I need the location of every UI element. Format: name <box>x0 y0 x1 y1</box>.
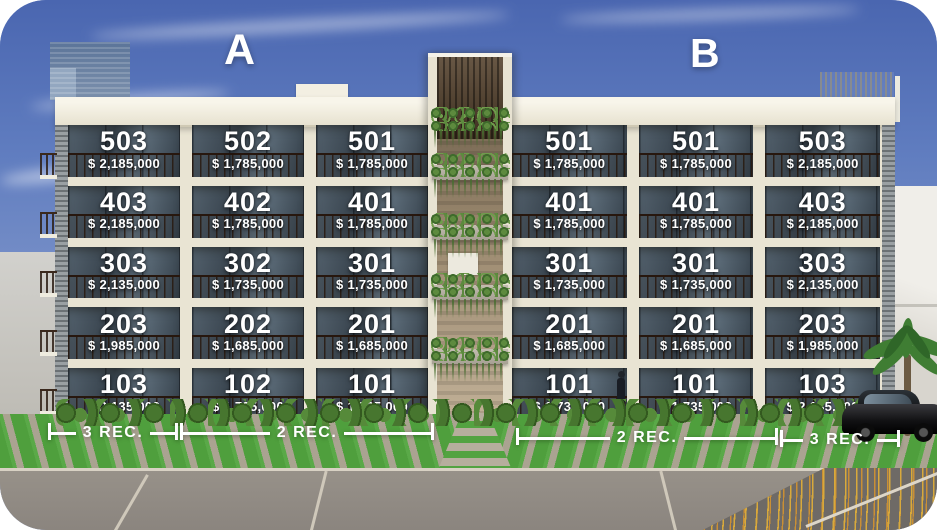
unit-number: 302 <box>224 249 272 277</box>
unit-number: 201 <box>348 310 396 338</box>
unit-number: 401 <box>348 188 396 216</box>
bracket-line <box>783 439 803 442</box>
section-b-grid: 501 $ 1,785,000 501 $ 1,785,000 503 $ 2,… <box>512 125 880 420</box>
unit-price: $ 2,185,000 <box>787 156 859 171</box>
side-balcony <box>40 153 57 179</box>
unit-cell: 401 $ 1,785,000 <box>316 186 428 238</box>
rooftop-pergola <box>820 72 894 98</box>
unit-number: 403 <box>100 188 148 216</box>
unit-label: 401 $ 1,785,000 <box>512 186 627 238</box>
vines <box>434 239 506 259</box>
background-glass-tower <box>50 42 130 100</box>
unit-price: $ 1,685,000 <box>533 338 605 353</box>
unit-price: $ 2,135,000 <box>88 277 160 292</box>
bracket-line <box>183 432 270 435</box>
unit-price: $ 1,985,000 <box>787 338 859 353</box>
unit-price: $ 2,185,000 <box>88 216 160 231</box>
hanging-plants <box>430 273 510 297</box>
bracket-line <box>877 439 897 442</box>
unit-number: 501 <box>348 127 396 155</box>
unit-label: 401 $ 1,785,000 <box>639 186 754 238</box>
rec-label: 2 REC. <box>610 430 685 445</box>
unit-number: 202 <box>224 310 272 338</box>
unit-price: $ 1,735,000 <box>212 277 284 292</box>
unit-label: 501 $ 1,785,000 <box>316 125 428 177</box>
rec-label: 2 REC. <box>270 425 345 440</box>
unit-label: 402 $ 1,785,000 <box>192 186 304 238</box>
person-head <box>618 371 625 378</box>
unit-label: 401 $ 1,785,000 <box>316 186 428 238</box>
unit-label: 202 $ 1,685,000 <box>192 307 304 359</box>
side-balcony <box>40 212 57 238</box>
unit-price: $ 1,785,000 <box>533 216 605 231</box>
car-wheel <box>914 423 933 442</box>
rooftop-structure <box>296 84 348 98</box>
unit-cell: 303 $ 2,135,000 <box>765 247 880 299</box>
unit-number: 503 <box>799 127 847 155</box>
side-balcony <box>40 271 57 297</box>
unit-label: 303 $ 2,135,000 <box>765 247 880 299</box>
unit-cell: 501 $ 1,785,000 <box>512 125 627 177</box>
unit-number: 503 <box>100 127 148 155</box>
unit-cell: 201 $ 1,685,000 <box>316 307 428 359</box>
unit-number: 401 <box>545 188 593 216</box>
unit-price: $ 2,135,000 <box>787 277 859 292</box>
unit-label: 203 $ 1,985,000 <box>68 307 180 359</box>
unit-number: 301 <box>348 249 396 277</box>
vines <box>434 179 506 199</box>
unit-cell: 203 $ 1,985,000 <box>68 307 180 359</box>
unit-label: 201 $ 1,685,000 <box>316 307 428 359</box>
unit-number: 203 <box>100 310 148 338</box>
section-label-b: B <box>690 30 720 77</box>
unit-cell: 202 $ 1,685,000 <box>192 307 304 359</box>
unit-price: $ 1,785,000 <box>533 156 605 171</box>
unit-number: 201 <box>545 310 593 338</box>
unit-cell: 201 $ 1,685,000 <box>512 307 627 359</box>
unit-cell: 303 $ 2,135,000 <box>68 247 180 299</box>
hanging-plants <box>430 213 510 237</box>
unit-number: 103 <box>100 370 148 398</box>
unit-price: $ 1,785,000 <box>212 216 284 231</box>
unit-price: $ 2,185,000 <box>787 216 859 231</box>
unit-cell: 302 $ 1,735,000 <box>192 247 304 299</box>
unit-number: 101 <box>672 370 720 398</box>
unit-label: 303 $ 2,135,000 <box>68 247 180 299</box>
unit-number: 501 <box>672 127 720 155</box>
unit-price: $ 1,735,000 <box>533 277 605 292</box>
hanging-plants <box>430 107 510 131</box>
unit-number: 103 <box>799 370 847 398</box>
unit-cell: 301 $ 1,735,000 <box>316 247 428 299</box>
unit-cell: 403 $ 2,185,000 <box>765 186 880 238</box>
unit-label: 302 $ 1,735,000 <box>192 247 304 299</box>
unit-price: $ 1,685,000 <box>212 338 284 353</box>
unit-price: $ 1,735,000 <box>660 277 732 292</box>
unit-price: $ 1,785,000 <box>660 216 732 231</box>
rec-bracket-a-2: 2 REC. <box>180 423 434 440</box>
unit-price: $ 1,735,000 <box>336 277 408 292</box>
unit-cell: 503 $ 2,185,000 <box>68 125 180 177</box>
bracket-line <box>519 437 610 440</box>
unit-cell: 503 $ 2,185,000 <box>765 125 880 177</box>
unit-price: $ 1,685,000 <box>336 338 408 353</box>
unit-number: 301 <box>672 249 720 277</box>
elevator-tower <box>428 53 512 429</box>
rec-bracket-b-3: 3 REC. <box>780 430 900 447</box>
unit-label: 201 $ 1,685,000 <box>512 307 627 359</box>
unit-cell: 403 $ 2,185,000 <box>68 186 180 238</box>
unit-label: 501 $ 1,785,000 <box>512 125 627 177</box>
bracket-line <box>51 432 76 435</box>
unit-price: $ 2,185,000 <box>88 156 160 171</box>
unit-number: 301 <box>545 249 593 277</box>
unit-number: 102 <box>224 370 272 398</box>
unit-number: 402 <box>224 188 272 216</box>
unit-number: 403 <box>799 188 847 216</box>
unit-label: 503 $ 2,185,000 <box>68 125 180 177</box>
unit-number: 101 <box>545 370 593 398</box>
unit-label: 501 $ 1,785,000 <box>639 125 754 177</box>
unit-cell: 401 $ 1,785,000 <box>639 186 754 238</box>
hanging-plants <box>430 337 510 361</box>
section-a-grid: 503 $ 2,185,000 502 $ 1,785,000 501 $ 1,… <box>68 125 428 420</box>
unit-number: 201 <box>672 310 720 338</box>
bracket-line <box>150 432 175 435</box>
unit-label: 403 $ 2,185,000 <box>765 186 880 238</box>
building-pricing-render: 503 $ 2,185,000 502 $ 1,785,000 501 $ 1,… <box>0 0 937 530</box>
rec-label: 3 REC. <box>76 425 151 440</box>
unit-label: 201 $ 1,685,000 <box>639 307 754 359</box>
unit-label: 301 $ 1,735,000 <box>639 247 754 299</box>
unit-cell: 501 $ 1,785,000 <box>316 125 428 177</box>
vines <box>434 363 506 383</box>
unit-price: $ 1,785,000 <box>212 156 284 171</box>
unit-price: $ 1,785,000 <box>660 156 732 171</box>
unit-number: 101 <box>348 370 396 398</box>
unit-cell: 501 $ 1,785,000 <box>639 125 754 177</box>
section-label-a: A <box>224 26 255 75</box>
unit-cell: 301 $ 1,735,000 <box>639 247 754 299</box>
side-balcony <box>40 330 57 356</box>
unit-label: 301 $ 1,735,000 <box>316 247 428 299</box>
rec-bracket-a-3: 3 REC. <box>48 423 178 440</box>
unit-number: 303 <box>100 249 148 277</box>
unit-number: 203 <box>799 310 847 338</box>
unit-price: $ 1,785,000 <box>336 216 408 231</box>
unit-cell: 502 $ 1,785,000 <box>192 125 304 177</box>
unit-cell: 402 $ 1,785,000 <box>192 186 304 238</box>
hanging-plants <box>430 153 510 177</box>
unit-number: 401 <box>672 188 720 216</box>
unit-number: 303 <box>799 249 847 277</box>
unit-cell: 401 $ 1,785,000 <box>512 186 627 238</box>
unit-price: $ 1,985,000 <box>88 338 160 353</box>
unit-price: $ 1,785,000 <box>336 156 408 171</box>
unit-label: 403 $ 2,185,000 <box>68 186 180 238</box>
unit-cell: 201 $ 1,685,000 <box>639 307 754 359</box>
unit-number: 501 <box>545 127 593 155</box>
unit-label: 502 $ 1,785,000 <box>192 125 304 177</box>
bracket-line <box>684 437 775 440</box>
unit-label: 503 $ 2,185,000 <box>765 125 880 177</box>
unit-number: 502 <box>224 127 272 155</box>
unit-label: 301 $ 1,735,000 <box>512 247 627 299</box>
rec-label: 3 REC. <box>803 432 878 447</box>
rec-bracket-b-2: 2 REC. <box>516 428 778 445</box>
bracket-line <box>344 432 431 435</box>
side-balcony <box>40 389 57 415</box>
vines <box>434 299 506 319</box>
unit-price: $ 1,685,000 <box>660 338 732 353</box>
unit-cell: 301 $ 1,735,000 <box>512 247 627 299</box>
vines <box>434 129 506 149</box>
bush-row <box>56 399 894 426</box>
